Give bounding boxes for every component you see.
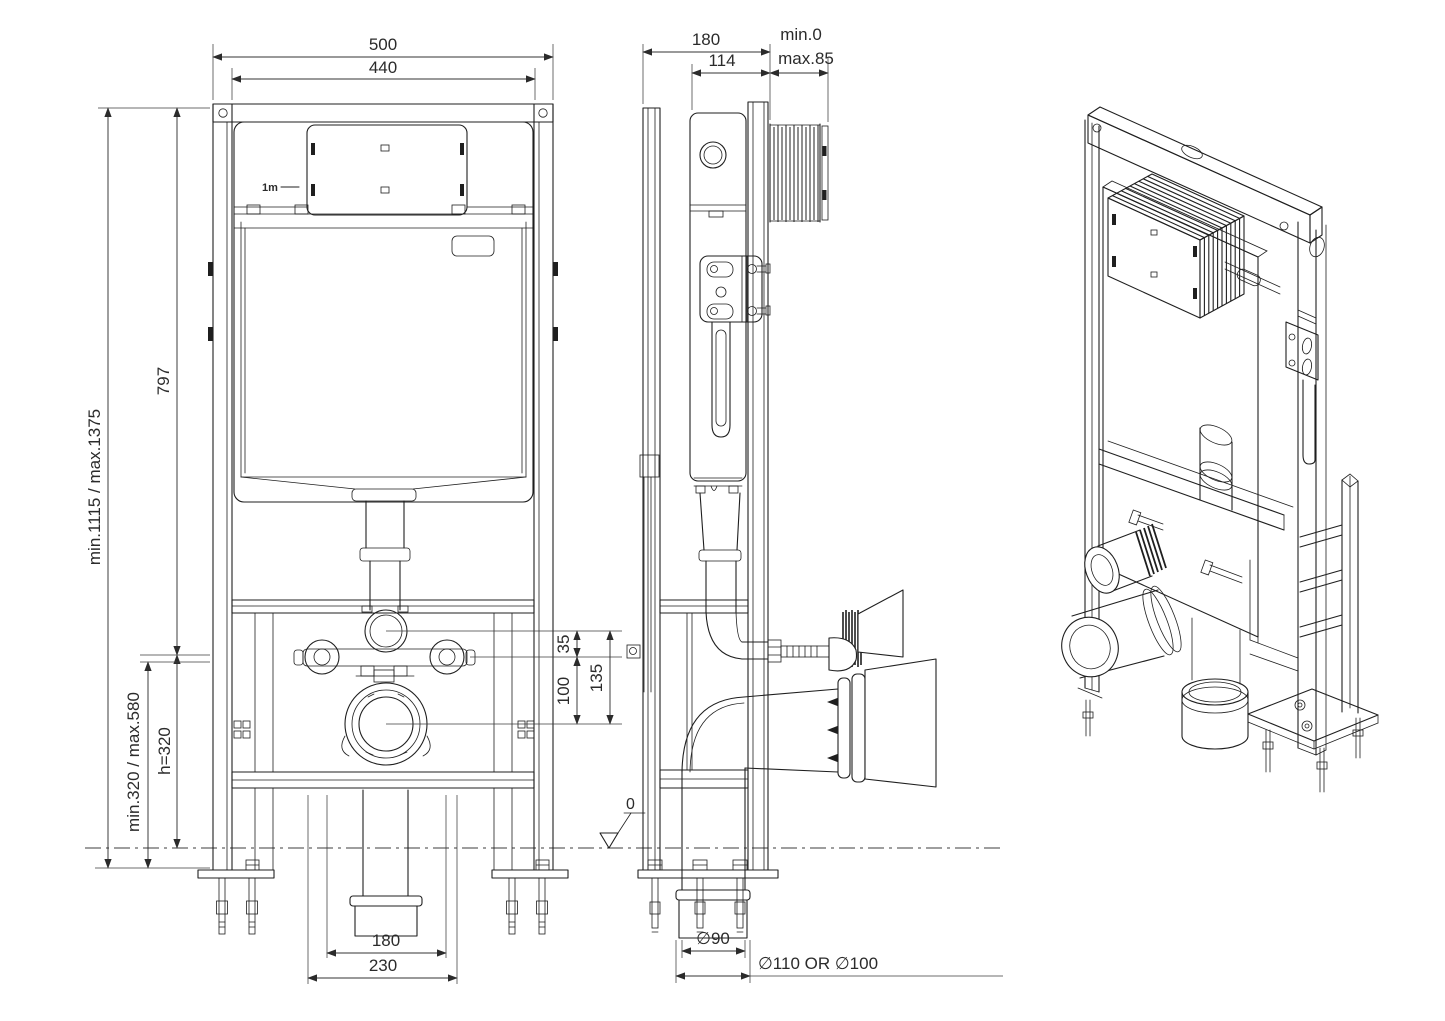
foot-plate <box>198 870 274 878</box>
wall-rail-profile <box>748 102 768 870</box>
bellows-cover <box>770 124 828 222</box>
fixing-rod-hole <box>305 640 339 674</box>
dim-inner-width: 440 <box>369 58 397 77</box>
corner-hole-icon <box>1093 124 1101 132</box>
dim-wall-max: max.85 <box>778 49 834 68</box>
dim-outlet-width: 180 <box>372 931 400 950</box>
bellows-side-ribs <box>1204 218 1239 315</box>
corner-hole-icon <box>539 109 547 117</box>
plate-bolt-icon <box>1295 700 1305 710</box>
iso-bellows <box>1108 174 1244 318</box>
front-flush-pipe <box>360 501 410 610</box>
corner-hole-icon <box>219 109 227 117</box>
bracket-screw-icon <box>1289 360 1295 366</box>
left-rail <box>213 104 232 870</box>
side-waste-connection <box>676 659 936 938</box>
dim-outlet-diameter: ∅90 <box>696 929 730 948</box>
side-dimensions: 180 114 min.0 max.85 ∅90 ∅110 OR ∅100 <box>643 25 1003 983</box>
side-foot <box>638 860 778 932</box>
dim-wall-min: min.0 <box>780 25 822 44</box>
waste-sleeve <box>676 890 750 900</box>
dim-flush-offset: 35 <box>554 635 573 654</box>
dim-floor-range: min.320 / max.580 <box>124 692 143 832</box>
dim-frame-height: 797 <box>154 367 173 395</box>
iso-flush-pipe <box>1197 421 1235 510</box>
bracket-screw-icon <box>1289 334 1295 340</box>
scale-marker-label: 1m <box>262 182 278 194</box>
rail-tab <box>208 262 213 276</box>
corner-hole-icon <box>1280 222 1288 230</box>
waste-connector-flange <box>838 678 850 778</box>
right-rail <box>534 104 553 870</box>
side-cistern <box>690 113 746 612</box>
isometric-view <box>1053 107 1378 792</box>
technical-drawing-canvas: 500 440 min.1115 / max.1375 797 h=320 mi… <box>0 0 1445 1021</box>
bracket-strap <box>712 322 730 437</box>
front-view: 500 440 min.1115 / max.1375 797 h=320 mi… <box>85 35 622 984</box>
anchor-bolt <box>693 860 707 932</box>
foot-plate <box>638 870 778 878</box>
bellows-hatching <box>774 125 818 222</box>
iso-bracket <box>1286 310 1318 464</box>
bracket-screw-icon <box>748 307 757 316</box>
dim-connection-diameter: ∅110 OR ∅100 <box>758 954 878 973</box>
front-rail-profile <box>643 108 660 870</box>
front-fittings <box>232 600 534 870</box>
front-dimensions: 500 440 min.1115 / max.1375 797 h=320 mi… <box>85 35 622 984</box>
dim-bracket-spacing: 230 <box>369 956 397 975</box>
overflow-slot <box>452 236 494 256</box>
side-view: 0 180 114 min.0 max.85 ∅90 ∅110 OR ∅100 <box>600 25 1003 983</box>
datum-triangle-icon <box>600 833 618 848</box>
rail-tab <box>553 327 558 341</box>
front-frame <box>208 104 558 870</box>
top-hole <box>1180 143 1205 162</box>
fixing-rod-hole <box>430 640 464 674</box>
rail-tab <box>553 262 558 276</box>
front-feet <box>198 790 568 936</box>
front-cistern <box>234 122 533 502</box>
waste-connector-cone <box>865 659 936 787</box>
anchor-bolt <box>507 878 518 934</box>
dim-flush-to-outlet: 135 <box>587 664 606 692</box>
dim-height-range: min.1115 / max.1375 <box>85 409 104 565</box>
anchor-bolt <box>537 878 548 934</box>
wall-bracket <box>700 256 770 437</box>
dim-rail-depth: 114 <box>708 51 735 70</box>
iso-support-ladder <box>1300 474 1358 713</box>
iso-waste-sleeve <box>1182 618 1248 749</box>
anchor-bolt <box>247 878 258 934</box>
dim-depth: 180 <box>692 30 720 49</box>
plate-bolt-icon <box>1302 721 1312 731</box>
iso-waste-connector <box>1053 583 1187 685</box>
anchor-bolt <box>217 878 228 934</box>
foot-plate <box>492 870 568 878</box>
bracket-screw-icon <box>748 265 757 274</box>
datum-marker: 0 <box>600 796 645 848</box>
bracket-strap <box>1303 380 1315 464</box>
dim-bar-to-outlet: 100 <box>554 677 573 705</box>
waste-sleeve <box>350 896 422 906</box>
flush-connector-cone <box>858 590 903 657</box>
iso-crossbars <box>1099 441 1298 671</box>
rail-tab <box>208 327 213 341</box>
dim-bar-height: h=320 <box>155 727 174 775</box>
anchor-bolt <box>648 860 662 932</box>
access-panel <box>307 125 467 215</box>
dim-overall-width: 500 <box>369 35 397 54</box>
datum-level-label: 0 <box>626 796 635 813</box>
